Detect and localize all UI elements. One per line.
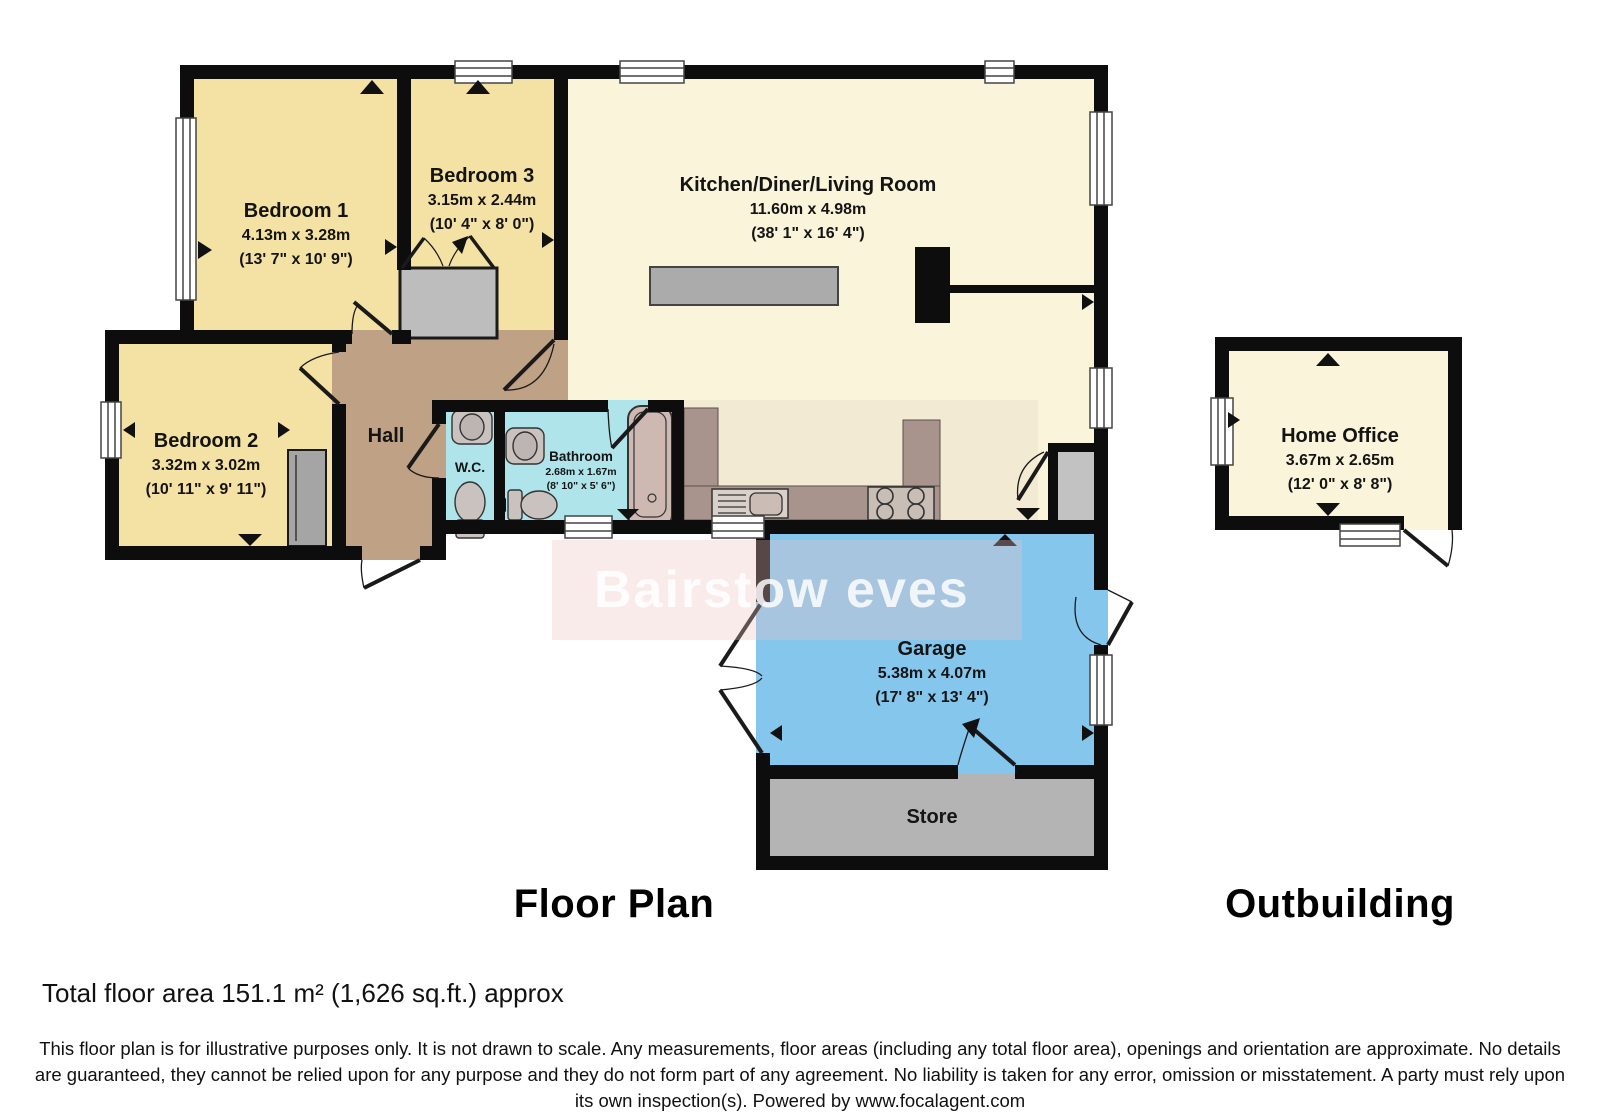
room-label-hall: Hall bbox=[368, 423, 405, 449]
bedroom2-wardrobe bbox=[288, 450, 326, 546]
kitchen-sink-icon bbox=[712, 489, 788, 518]
floor-plan-page: Bairstow eves Bedroom 1 4.13m x 3.28m (1… bbox=[0, 0, 1600, 1120]
bedroom3-wardrobe bbox=[400, 268, 497, 338]
bathroom-sink-icon bbox=[506, 428, 544, 464]
wc-sink-icon bbox=[452, 410, 492, 444]
room-label-store: Store bbox=[906, 804, 957, 830]
disclaimer-text: This floor plan is for illustrative purp… bbox=[30, 1036, 1570, 1114]
home-office-door bbox=[1404, 530, 1453, 566]
kitchen-bottom-window bbox=[712, 516, 764, 538]
hob-icon bbox=[868, 487, 934, 520]
total-floor-area: Total floor area 151.1 m² (1,626 sq.ft.)… bbox=[42, 978, 564, 1009]
home-office-left-window bbox=[1211, 398, 1233, 465]
room-label-kitchen: Kitchen/Diner/Living Room 11.60m x 4.98m… bbox=[680, 172, 937, 246]
kitchen-top-window-2 bbox=[985, 61, 1014, 83]
kitchen-cupboard bbox=[1058, 452, 1094, 520]
room-label-home-office: Home Office 3.67m x 2.65m (12' 0" x 8' 8… bbox=[1281, 423, 1399, 497]
room-label-wc: W.C. bbox=[455, 458, 485, 476]
outbuilding-title: Outbuilding bbox=[1225, 882, 1455, 927]
kitchen-right-window-2 bbox=[1090, 368, 1112, 428]
room-label-garage: Garage 5.38m x 4.07m (17' 8" x 13' 4") bbox=[875, 636, 989, 710]
bedroom1-window bbox=[176, 118, 196, 300]
watermark: Bairstow eves bbox=[594, 545, 1024, 635]
bedroom2-window bbox=[101, 402, 121, 458]
garage-right-window bbox=[1090, 655, 1112, 725]
bathroom-window bbox=[565, 516, 612, 538]
home-office-bottom-window bbox=[1340, 524, 1400, 546]
floor-plan-title: Floor Plan bbox=[514, 882, 715, 927]
chimney-breast bbox=[915, 247, 950, 323]
bedroom3-top-window bbox=[455, 61, 512, 83]
room-label-bedroom1: Bedroom 1 4.13m x 3.28m (13' 7" x 10' 9"… bbox=[239, 198, 353, 272]
kitchen-island bbox=[650, 267, 838, 305]
room-label-bathroom: Bathroom 2.68m x 1.67m (8' 10" x 5' 6") bbox=[545, 448, 616, 493]
room-label-bedroom2: Bedroom 2 3.32m x 3.02m (10' 11" x 9' 11… bbox=[146, 428, 267, 502]
kitchen-right-window-1 bbox=[1090, 112, 1112, 205]
room-label-bedroom3: Bedroom 3 3.15m x 2.44m (10' 4" x 8' 0") bbox=[428, 163, 537, 237]
front-door bbox=[361, 560, 420, 588]
kitchen-top-window-1 bbox=[620, 61, 684, 83]
